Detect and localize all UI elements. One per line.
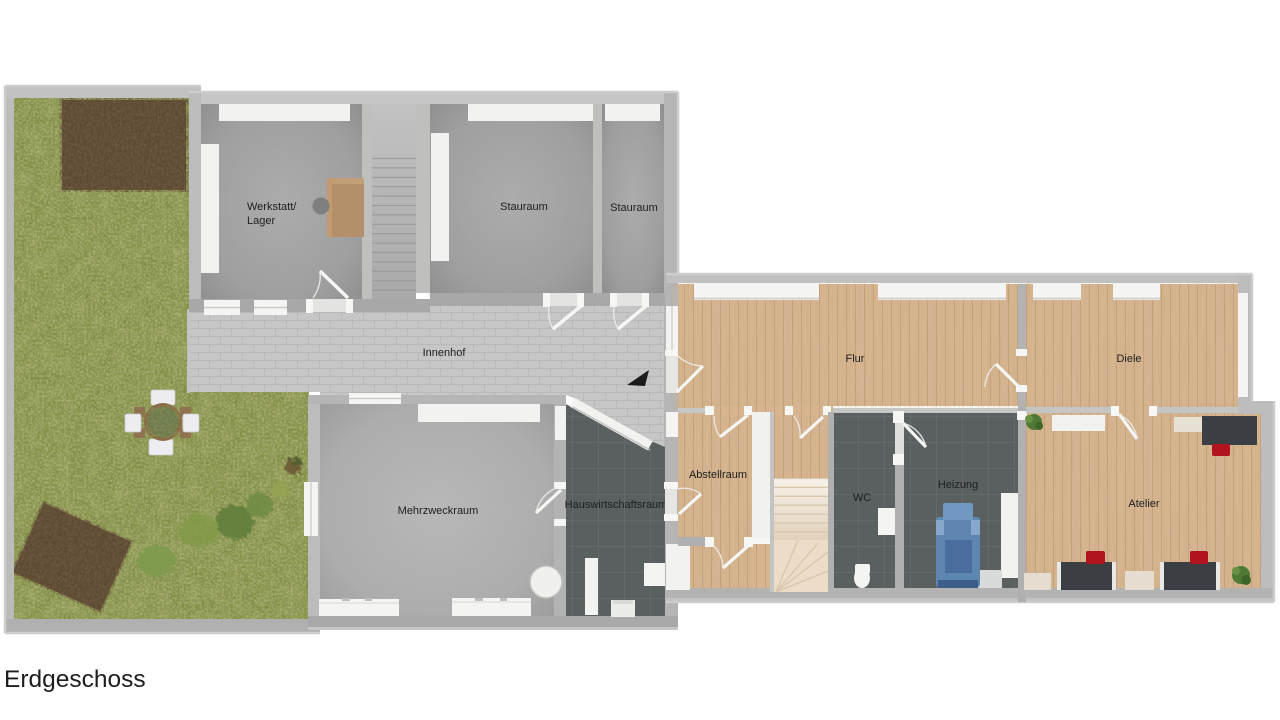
svg-text:Flur: Flur — [846, 353, 865, 365]
svg-text:Abstellraum: Abstellraum — [689, 469, 747, 481]
svg-text:WC: WC — [853, 492, 871, 504]
svg-text:Diele: Diele — [1116, 353, 1141, 365]
svg-text:Stauraum: Stauraum — [610, 202, 658, 214]
svg-text:Heizung: Heizung — [938, 479, 978, 491]
svg-text:Hauswirtschaftsraum: Hauswirtschaftsraum — [565, 499, 668, 511]
svg-text:Atelier: Atelier — [1128, 498, 1160, 510]
svg-text:Stauraum: Stauraum — [500, 201, 548, 213]
svg-text:Mehrzweckraum: Mehrzweckraum — [398, 505, 479, 517]
svg-text:Erdgeschoss: Erdgeschoss — [4, 666, 146, 693]
svg-text:Werkstatt/: Werkstatt/ — [247, 201, 297, 213]
svg-text:Lager: Lager — [247, 215, 275, 227]
svg-text:Innenhof: Innenhof — [423, 347, 467, 359]
